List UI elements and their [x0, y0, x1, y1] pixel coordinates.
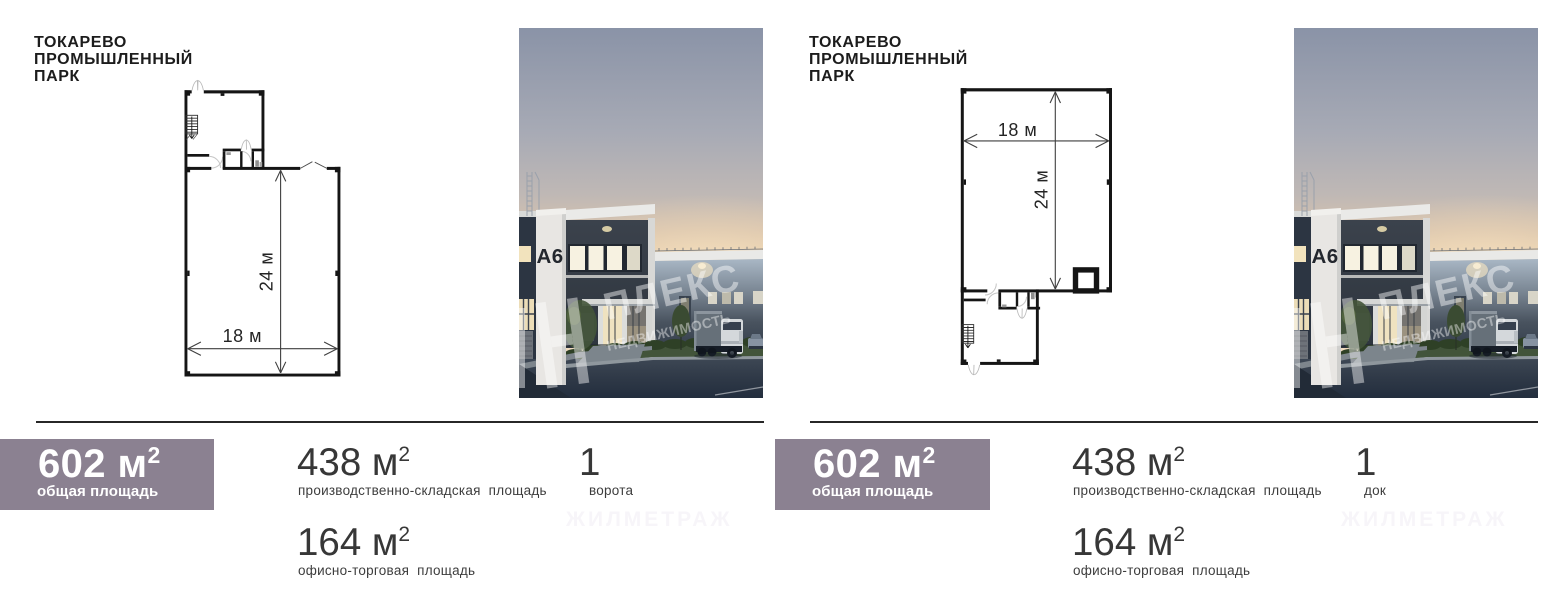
svg-text:18 м: 18 м	[998, 120, 1037, 140]
svg-text:18 м: 18 м	[223, 326, 262, 346]
svg-text:24 м: 24 м	[1031, 170, 1051, 209]
svg-text:24 м: 24 м	[257, 252, 277, 291]
